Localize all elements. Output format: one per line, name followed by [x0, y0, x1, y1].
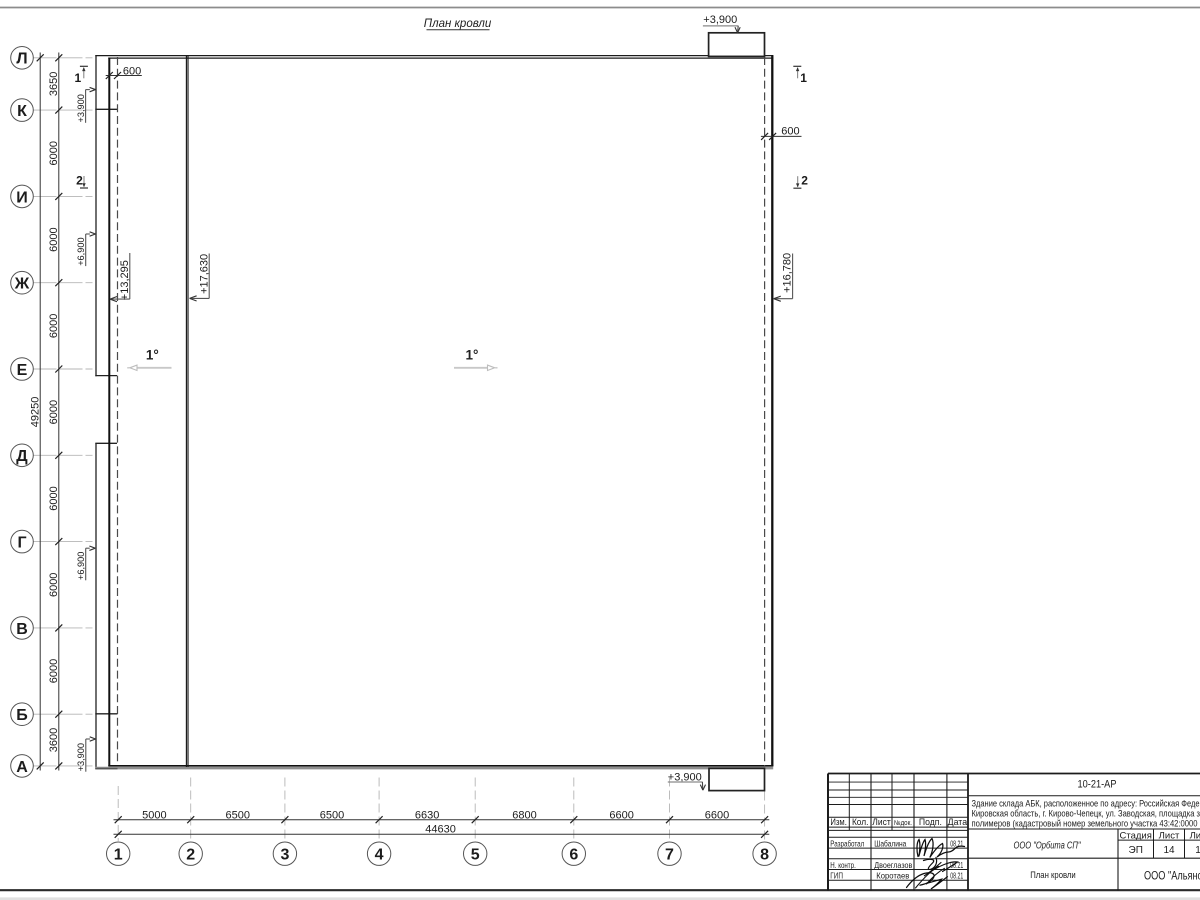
svg-text:План кровли: План кровли: [424, 18, 492, 30]
svg-text:6000: 6000: [48, 486, 60, 510]
svg-text:+17,630: +17,630: [198, 254, 210, 294]
svg-text:ГИП: ГИП: [830, 870, 843, 880]
svg-text:6600: 6600: [705, 809, 729, 821]
svg-text:6000: 6000: [48, 141, 60, 165]
svg-text:49250: 49250: [30, 397, 42, 428]
svg-text:Лист: Лист: [1159, 830, 1180, 841]
svg-text:№док.: №док.: [894, 820, 912, 827]
svg-text:6000: 6000: [48, 227, 60, 251]
svg-text:1: 1: [800, 71, 807, 85]
svg-text:Изм.: Изм.: [830, 817, 847, 828]
svg-text:И: И: [16, 189, 28, 206]
svg-text:6630: 6630: [415, 809, 439, 821]
svg-text:Г: Г: [17, 535, 26, 552]
svg-text:Е: Е: [17, 362, 28, 379]
svg-text:1°: 1°: [146, 348, 159, 363]
svg-text:Подп.: Подп.: [919, 817, 942, 828]
svg-text:+3,900: +3,900: [76, 743, 86, 771]
svg-text:6000: 6000: [48, 314, 60, 338]
svg-text:44630: 44630: [425, 824, 456, 836]
svg-text:600: 600: [781, 125, 799, 137]
svg-text:08.21: 08.21: [950, 870, 963, 880]
svg-text:8: 8: [760, 847, 769, 864]
svg-text:6000: 6000: [48, 659, 60, 683]
svg-text:5000: 5000: [142, 809, 166, 821]
svg-text:10-21-АР: 10-21-АР: [1078, 778, 1117, 790]
svg-text:Здание склада АБК, расположенн: Здание склада АБК, расположенное по адре…: [972, 799, 1200, 809]
svg-text:Шабалина: Шабалина: [874, 838, 906, 848]
svg-text:Кол.: Кол.: [852, 817, 869, 828]
svg-text:Лист: Лист: [872, 817, 891, 828]
svg-text:6500: 6500: [226, 809, 250, 821]
svg-text:3650: 3650: [48, 72, 60, 96]
svg-text:2: 2: [801, 174, 808, 188]
svg-text:6500: 6500: [320, 809, 344, 821]
svg-text:Двоеглазов: Двоеглазов: [874, 860, 912, 870]
svg-text:6000: 6000: [48, 573, 60, 597]
svg-text:14: 14: [1163, 845, 1175, 856]
svg-text:Кировская область, г. Кирово-Ч: Кировская область, г. Кирово-Чепецк, ул.…: [972, 809, 1200, 819]
svg-text:В: В: [16, 621, 28, 638]
svg-text:Стадия: Стадия: [1120, 830, 1152, 841]
svg-text:ЭП: ЭП: [1129, 845, 1143, 856]
svg-text:Д: Д: [16, 448, 28, 465]
svg-text:Коротаев: Коротаев: [876, 870, 909, 880]
svg-text:1: 1: [1195, 845, 1200, 856]
svg-text:Л: Л: [16, 51, 27, 68]
svg-text:А: А: [16, 759, 28, 776]
svg-text:6800: 6800: [512, 809, 536, 821]
svg-text:2: 2: [76, 173, 83, 187]
svg-text:Разработал: Разработал: [830, 838, 864, 848]
svg-text:полимеров (кадастровый номер з: полимеров (кадастровый номер земельного …: [972, 819, 1198, 829]
svg-text:2: 2: [186, 847, 195, 864]
svg-text:План кровли: План кровли: [1030, 870, 1076, 881]
svg-text:Б: Б: [16, 707, 28, 724]
svg-text:+13,295: +13,295: [119, 260, 131, 300]
svg-text:+16,780: +16,780: [782, 253, 794, 293]
svg-text:К: К: [17, 103, 27, 120]
svg-text:1°: 1°: [466, 348, 479, 363]
svg-text:Дата: Дата: [948, 817, 968, 828]
svg-text:1: 1: [114, 847, 123, 864]
svg-text:+6,900: +6,900: [76, 237, 86, 265]
svg-text:7: 7: [665, 847, 674, 864]
svg-text:+3,900: +3,900: [703, 14, 737, 26]
svg-text:Н. контр.: Н. контр.: [830, 860, 856, 870]
svg-text:5: 5: [471, 847, 480, 864]
svg-text:3600: 3600: [48, 728, 60, 752]
svg-text:ООО "Орбита СП": ООО "Орбита СП": [1014, 839, 1081, 851]
svg-text:Листов: Листов: [1190, 830, 1200, 841]
svg-text:+3,900: +3,900: [76, 94, 86, 122]
svg-text:4: 4: [375, 847, 384, 864]
svg-text:Ж: Ж: [14, 276, 30, 293]
svg-text:+6,900: +6,900: [76, 552, 86, 580]
svg-text:6600: 6600: [609, 809, 633, 821]
svg-text:6: 6: [569, 847, 578, 864]
svg-text:6000: 6000: [48, 400, 60, 424]
svg-text:ООО "Альянспроект": ООО "Альянспроект": [1144, 868, 1200, 882]
svg-text:1: 1: [75, 71, 82, 85]
svg-text:3: 3: [280, 847, 289, 864]
